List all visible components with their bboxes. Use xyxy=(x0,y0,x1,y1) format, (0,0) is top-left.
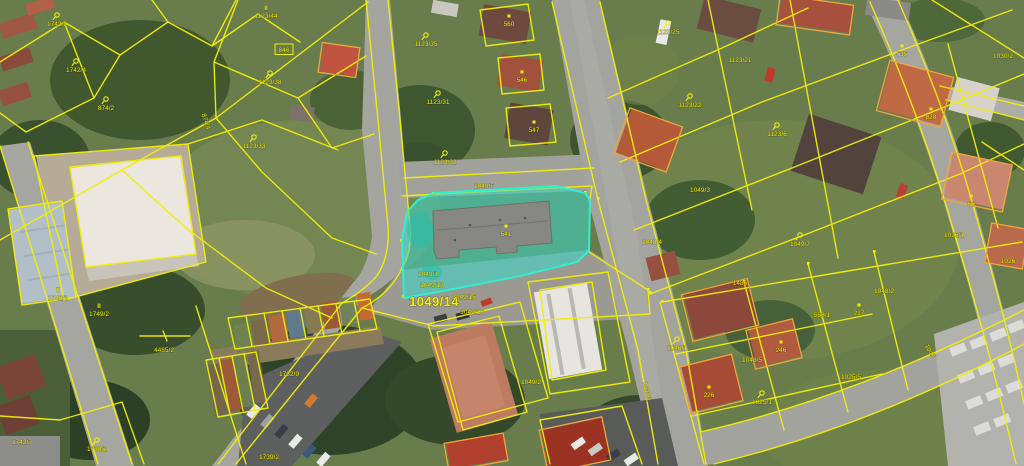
parcel-label: 1048/4 xyxy=(642,239,662,246)
building-point-symbol xyxy=(508,15,511,18)
highlight-tree-shade xyxy=(407,212,433,248)
building-point-symbol xyxy=(505,225,508,228)
parcel-label: 1742/4 xyxy=(66,67,86,74)
parcel-label: 558/1 xyxy=(814,312,831,319)
parcel-label: 66 xyxy=(967,201,975,208)
parcel-label: 1048/2 xyxy=(874,288,894,295)
parcel-label: 1123/35 xyxy=(414,41,437,48)
parcel-label-group: 1742/7 xyxy=(12,439,32,446)
parcel-label: 1123/32 xyxy=(433,159,456,166)
parcel-label: 1049/7 xyxy=(790,241,810,248)
parcel-label-group: 1030/2 xyxy=(993,53,1013,60)
parcel-label-group: 1049/5 xyxy=(474,183,494,190)
building-point-symbol xyxy=(708,386,711,389)
parcel-label: 1123/33 xyxy=(242,143,265,150)
parcel-label: 541 xyxy=(501,231,512,238)
building-point-symbol xyxy=(521,71,524,74)
meadow-symbol: II xyxy=(97,303,101,310)
parcel-label: 1049/13 xyxy=(420,282,444,289)
parcel-label: 1742/3 xyxy=(47,21,67,28)
parcel-label-group: 1049/15 xyxy=(452,294,476,301)
parcel-label: 1049/15 xyxy=(452,294,476,301)
parcel-label-group: 1123/21 xyxy=(728,57,751,64)
parcel-label-group: 1048/2 xyxy=(874,288,894,295)
parcel-label-group: 1732/9 xyxy=(279,371,299,378)
parcel-label-group: 1026/1 xyxy=(944,232,964,239)
parcel-label: 1046/1 xyxy=(667,345,687,352)
parcel-label: 560 xyxy=(504,21,515,28)
parcel-label: 535 xyxy=(897,51,908,58)
parcel-label-group: 1049/2 xyxy=(521,379,541,386)
parcel-label-group: 1486 xyxy=(733,280,748,287)
parcel-label: 1049/5 xyxy=(474,183,494,190)
map-viewport[interactable]: 1742/3II1123/448461742/41123/38874/2874/… xyxy=(0,0,1024,466)
parcel-label: 828 xyxy=(926,114,937,121)
parcel-label: 1026/1 xyxy=(944,232,964,239)
parcel-label: 1732/9 xyxy=(279,371,299,378)
building-point-symbol xyxy=(970,195,973,198)
parcel-label: 547 xyxy=(529,127,540,134)
building-point-symbol xyxy=(901,45,904,48)
parcel-label: 4485/2 xyxy=(154,347,174,354)
large-white-hall xyxy=(70,156,196,268)
parcel-label-group: 1049/16 xyxy=(460,309,484,316)
parcel-label: 1025/5 xyxy=(841,374,861,381)
parcel-label: 1739/2 xyxy=(259,454,279,461)
parcel-label: 1123/44 xyxy=(254,13,277,20)
building-point-symbol xyxy=(533,121,536,124)
parcel-label-group: 558/1 xyxy=(814,312,831,319)
parcel-label-group: 1048/5 xyxy=(742,357,762,364)
parcel-label-group: 1049/13 xyxy=(420,282,444,289)
parcel-label: 1123/25 xyxy=(656,29,679,36)
parcel-label: 1049/2 xyxy=(521,379,541,386)
parcel-label: 1049/1 xyxy=(418,271,438,278)
parcel-label: 1026 xyxy=(1001,258,1016,265)
parcel-label-group: 1025/5 xyxy=(841,374,861,381)
parcel-label-group: 1049/1 xyxy=(418,271,438,278)
parcel-label-group: 4485/2 xyxy=(154,347,174,354)
parcel-label-group: 1049/3 xyxy=(690,187,710,194)
parcel-label: 1742/2 xyxy=(48,295,68,302)
parcel-label: 1486 xyxy=(733,280,748,287)
parcel-label: 1048/5 xyxy=(742,357,762,364)
parcel-label: 1123/38 xyxy=(258,79,281,86)
building-point-symbol xyxy=(858,304,861,307)
parcel-label: 1123/6 xyxy=(767,131,787,138)
parcel-label-group: 1026 xyxy=(1001,258,1016,265)
parcel-label-group: 1048/4 xyxy=(642,239,662,246)
parcel-label: 1123/21 xyxy=(728,57,751,64)
parcel-label: 217 xyxy=(854,310,865,317)
parcel-label: 1123/31 xyxy=(426,99,449,106)
meadow-symbol: II xyxy=(56,287,60,294)
parcel-label: 846 xyxy=(279,47,290,54)
parcel-label: 1030/2 xyxy=(993,53,1013,60)
building-point-symbol xyxy=(780,341,783,344)
parcel-label: 246 xyxy=(776,347,787,354)
meadow-symbol: II xyxy=(264,5,268,12)
parcel-label: 1749/2 xyxy=(89,311,109,318)
parcel-label: 1738/2 xyxy=(87,446,107,453)
parcel-label: 1123/22 xyxy=(678,102,701,109)
map-canvas: 1742/3II1123/448461742/41123/38874/2874/… xyxy=(0,0,1024,466)
parcel-label: 546 xyxy=(517,77,528,84)
parcel-label-group: 1739/2 xyxy=(259,454,279,461)
parcel-label: 1049/3 xyxy=(690,187,710,194)
parcel-label: 226 xyxy=(704,392,715,399)
parcel-label: 1049/16 xyxy=(460,309,484,316)
parcel-label: 1025/1 xyxy=(752,399,772,406)
parcel-label: 874/2 xyxy=(98,105,115,112)
parcel-label: 1742/7 xyxy=(12,439,32,446)
building-point-symbol xyxy=(930,108,933,111)
